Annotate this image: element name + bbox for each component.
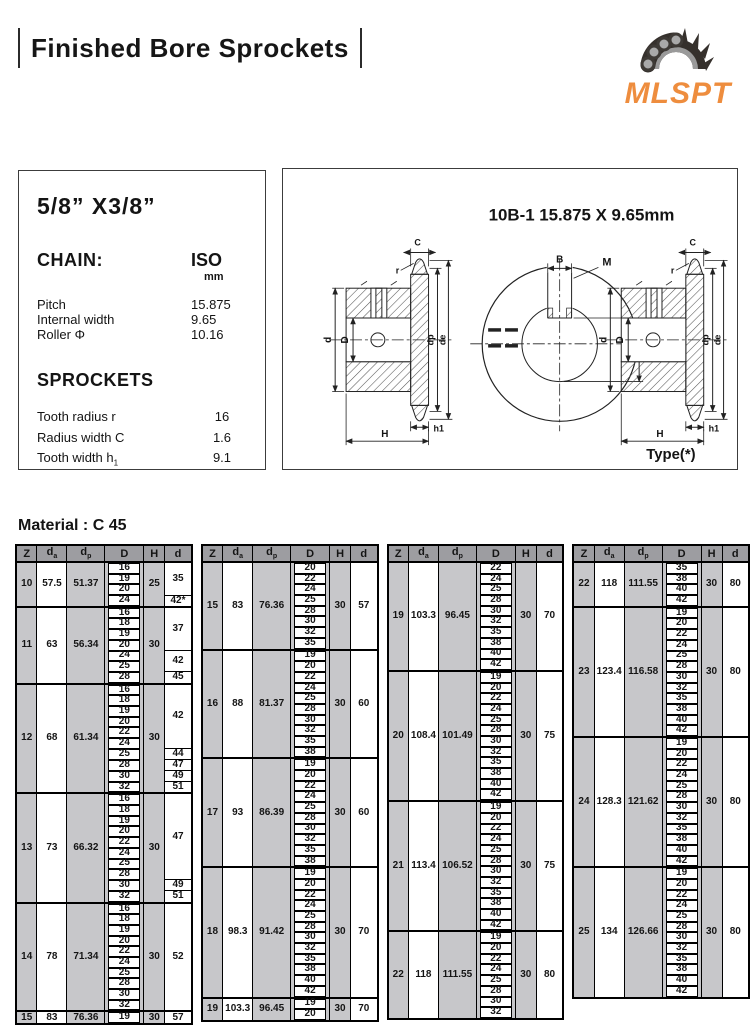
bore-diameter-value: 30 (666, 672, 698, 683)
table-row: 1898.391.42193070 (202, 867, 378, 879)
dim-label-h1: h1 (434, 423, 444, 433)
bore-diameter-value: 42 (666, 986, 698, 997)
spec-row: Radius width C 1.6 (37, 430, 253, 451)
cell-da: 113.4 (408, 801, 438, 931)
cell-da: 57.5 (37, 562, 67, 607)
bore-diameter-value: 19 (108, 1012, 140, 1023)
col-header-z: Z (16, 545, 37, 562)
cell-d: 47 (165, 793, 192, 880)
cell-z: 20 (388, 671, 409, 801)
dim-label-d: d (323, 337, 334, 343)
cell-dp: 101.49 (438, 671, 476, 801)
bore-diameter-value: 28 (108, 760, 140, 771)
cell-D: 42 (662, 725, 701, 737)
bore-diameter-value: 25 (108, 749, 140, 760)
col-header-d: D (476, 545, 515, 562)
cell-h: 30 (144, 607, 165, 684)
spec-row-label: Tooth width h1 (37, 450, 191, 471)
cell-D: 28 (105, 672, 144, 684)
sprocket-section-view-left: C r d D dp de h1 H (323, 237, 454, 445)
spec-row-label: Radius width C (37, 430, 191, 451)
cell-D: 32 (105, 782, 144, 794)
bore-diameter-value: 30 (108, 771, 140, 782)
title-rule-right (360, 28, 362, 68)
cell-da: 83 (37, 1011, 67, 1024)
cell-d: 80 (722, 562, 749, 607)
cell-d: 70 (351, 998, 378, 1021)
col-header-d: d (722, 545, 749, 562)
sprocket-table-1: ZdadpDHd1057.551.3716253519202442*116356… (15, 544, 193, 1025)
spec-row-value: 1.6 (191, 430, 253, 451)
col-header-d: D (105, 545, 144, 562)
cell-z: 25 (573, 867, 594, 997)
col-header-d: D (291, 545, 330, 562)
cell-d: 51 (165, 782, 192, 794)
cell-h: 25 (144, 562, 165, 607)
cell-h: 30 (144, 684, 165, 794)
dim-label-h1: h1 (709, 423, 719, 433)
bore-diameter-value: 40 (666, 845, 698, 856)
col-header-h: H (330, 545, 351, 562)
cell-d: 42* (165, 595, 192, 607)
bore-diameter-value: 42 (666, 856, 698, 867)
dim-label-H: H (656, 429, 663, 440)
table-row: 126861.34163042 (16, 684, 192, 696)
table-row: 158376.36203057 (202, 562, 378, 574)
cell-d: 49 (165, 880, 192, 891)
bore-diameter-value: 38 (294, 747, 326, 758)
bore-diameter-value: 38 (294, 856, 326, 867)
dim-label-d: d (598, 337, 609, 343)
cell-d: 44 (165, 749, 192, 760)
cell-dp: 66.32 (67, 793, 105, 902)
cell-h: 30 (701, 562, 722, 607)
spec-row: Roller Φ 10.16 (37, 327, 253, 342)
col-header-d: d (351, 545, 378, 562)
col-header-d: D (662, 545, 701, 562)
chain-section-label: CHAIN: (37, 250, 191, 271)
table-row: 24128.3121.62193080 (573, 737, 749, 749)
bore-diameter-value: 22 (294, 672, 326, 683)
table-row: 116356.34163037 (16, 607, 192, 619)
cell-dp: 56.34 (67, 607, 105, 684)
material-label: Material : C 45 (18, 517, 126, 535)
spec-panel: 5/8” X3/8” CHAIN: ISO mm Pitch 15.875 In… (18, 170, 266, 470)
cell-D: 42 (476, 789, 515, 801)
cell-D: 42 (476, 920, 515, 932)
col-header-h: H (144, 545, 165, 562)
spec-row-value: 9.65 (191, 312, 253, 327)
bore-diameter-value: 19 (480, 672, 512, 683)
spec-row-value: 10.16 (191, 327, 253, 342)
bore-diameter-value: 32 (108, 1000, 140, 1011)
dim-label-B: B (556, 254, 563, 265)
chain-unit: mm (191, 271, 253, 283)
cell-h: 30 (515, 562, 536, 671)
table-row: 1057.551.37162535 (16, 562, 192, 574)
table-row: 19103.396.45193070 (202, 998, 378, 1010)
logo-gear-icon (642, 28, 714, 71)
cell-D: 42 (662, 595, 701, 607)
col-header-z: Z (202, 545, 223, 562)
cell-z: 19 (388, 562, 409, 671)
cell-h: 30 (701, 737, 722, 867)
bore-diameter-value: 32 (108, 782, 140, 793)
table-row: 19103.396.45223070 (388, 562, 564, 574)
cell-D: 22 (476, 562, 515, 574)
cell-da: 73 (37, 793, 67, 902)
table-row: 22118111.55353080 (573, 562, 749, 574)
cell-dp: 81.37 (253, 650, 291, 759)
header-bar: Finished Bore Sprockets (18, 28, 362, 68)
cell-d: 80 (722, 607, 749, 737)
cell-dp: 111.55 (624, 562, 662, 607)
cell-da: 93 (223, 758, 253, 867)
cell-dp: 61.34 (67, 684, 105, 794)
cell-d: 42 (165, 684, 192, 749)
cell-da: 88 (223, 650, 253, 759)
cell-h: 30 (515, 801, 536, 931)
cell-d: 60 (351, 650, 378, 759)
cell-da: 98.3 (223, 867, 253, 997)
cell-d: 45 (165, 672, 192, 684)
bore-diameter-value: 35 (294, 638, 326, 649)
cell-dp: 111.55 (438, 931, 476, 1019)
page-title: Finished Bore Sprockets (31, 33, 349, 64)
cell-da: 108.4 (408, 671, 438, 801)
spec-row-label: Roller Φ (37, 327, 191, 342)
spec-row: Tooth width h1 9.1 (37, 450, 253, 471)
col-header-d: d (165, 545, 192, 562)
cell-d: 37 (165, 607, 192, 651)
title-rule-left (18, 28, 20, 68)
cell-dp: 96.45 (253, 998, 291, 1021)
cell-d: 47 (165, 760, 192, 771)
cell-D: 20 (291, 562, 330, 574)
cell-D: 32 (476, 1007, 515, 1019)
logo-wordmark: MLSPT (625, 77, 733, 110)
tables-container: ZdadpDHd1057.551.3716253519202442*116356… (15, 544, 750, 1025)
cell-z: 16 (202, 650, 223, 759)
cell-D: 42 (291, 986, 330, 998)
cell-da: 103.3 (408, 562, 438, 671)
bore-diameter-value: 35 (294, 845, 326, 856)
col-header-da: da (37, 545, 67, 562)
col-header-dp: dp (438, 545, 476, 562)
spec-row-value: 9.1 (191, 450, 253, 471)
cell-dp: 91.42 (253, 867, 291, 997)
cell-z: 21 (388, 801, 409, 931)
spec-row: Internal width 9.65 (37, 312, 253, 327)
col-header-h: H (701, 545, 722, 562)
sprocket-table-4: ZdadpDHd22118111.5535308038404223123.411… (572, 544, 750, 999)
col-header-z: Z (388, 545, 409, 562)
table-row: 20108.4101.49193075 (388, 671, 564, 683)
dim-label-dp: dp (701, 334, 711, 345)
dim-label-D: D (615, 336, 626, 343)
cell-dp: 126.66 (624, 867, 662, 997)
cell-z: 19 (202, 998, 223, 1021)
cell-da: 83 (223, 562, 253, 650)
cell-d: 70 (536, 562, 563, 671)
cell-h: 30 (701, 607, 722, 737)
drawing-panel: 10B-1 15.875 X 9.65mm C r d D dp de h1 H (282, 168, 738, 470)
cell-dp: 86.39 (253, 758, 291, 867)
spec-row-value: 15.875 (191, 297, 253, 312)
cell-d: 49 (165, 771, 192, 782)
cell-z: 18 (202, 867, 223, 997)
cell-d: 80 (536, 931, 563, 1019)
cell-z: 24 (573, 737, 594, 867)
bore-diameter-value: 20 (294, 1009, 326, 1020)
cell-da: 128.3 (594, 737, 624, 867)
sprocket-section-view-right: C r d D dp de h1 H (598, 237, 729, 445)
bore-diameter-value: 42 (666, 725, 698, 736)
spec-row-label: Tooth radius r (37, 409, 191, 430)
cell-D: 20 (291, 1009, 330, 1021)
cell-d: 52 (165, 903, 192, 1012)
bore-diameter-value: 42 (666, 595, 698, 606)
cell-d: 60 (351, 758, 378, 867)
dim-label-C: C (690, 237, 697, 247)
cell-h: 30 (144, 903, 165, 1012)
catalog-page: { "header": { "title": "Finished Bore Sp… (0, 0, 750, 1036)
cell-z: 11 (16, 607, 37, 684)
cell-d: 75 (536, 801, 563, 931)
bore-diameter-value: 25 (480, 845, 512, 856)
cell-da: 68 (37, 684, 67, 794)
cell-D: 35 (291, 638, 330, 650)
cell-z: 12 (16, 684, 37, 794)
cell-z: 22 (388, 931, 409, 1019)
spec-row: Tooth radius r 16 (37, 409, 253, 430)
cell-d: 80 (722, 867, 749, 997)
size-title: 5/8” X3/8” (37, 193, 253, 220)
cell-D: 40 (662, 845, 701, 856)
table-row: 22118111.55193080 (388, 931, 564, 943)
dim-label-dp: dp (426, 334, 436, 345)
cell-h: 30 (330, 650, 351, 759)
dim-label-de: de (713, 335, 723, 345)
col-header-da: da (408, 545, 438, 562)
cell-da: 118 (594, 562, 624, 607)
cell-h: 30 (701, 867, 722, 997)
cell-d: 57 (351, 562, 378, 650)
cell-d: 80 (722, 737, 749, 867)
cell-dp: 71.34 (67, 903, 105, 1012)
bore-diameter-value: 42 (480, 789, 512, 800)
dim-label-H: H (381, 429, 388, 440)
cell-D: 42 (476, 659, 515, 671)
cell-dp: 121.62 (624, 737, 662, 867)
col-header-dp: dp (624, 545, 662, 562)
cell-z: 14 (16, 903, 37, 1012)
cell-h: 30 (330, 758, 351, 867)
sprocket-technical-drawing: 10B-1 15.875 X 9.65mm C r d D dp de h1 H (283, 169, 737, 469)
col-header-z: Z (573, 545, 594, 562)
dim-label-D: D (340, 336, 351, 343)
chain-standard: ISO (191, 250, 253, 271)
table-row: 25134126.66193080 (573, 867, 749, 879)
cell-da: 118 (408, 931, 438, 1019)
dim-label-r: r (396, 265, 400, 275)
spec-row-label: Pitch (37, 297, 191, 312)
col-header-dp: dp (253, 545, 291, 562)
cell-d: 70 (351, 867, 378, 997)
table-row: 21113.4106.52193075 (388, 801, 564, 813)
cell-z: 15 (16, 1011, 37, 1024)
cell-D: 42 (662, 986, 701, 998)
bore-diameter-value: 42 (294, 986, 326, 997)
cell-D: 35 (662, 562, 701, 574)
cell-z: 10 (16, 562, 37, 607)
cell-d: 35 (165, 562, 192, 595)
cell-d: 51 (165, 891, 192, 903)
cell-h: 30 (515, 671, 536, 801)
cell-da: 63 (37, 607, 67, 684)
cell-D: 16 (105, 562, 144, 574)
bore-diameter-value: 42 (480, 659, 512, 670)
col-header-da: da (594, 545, 624, 562)
table-row: 137366.32163047 (16, 793, 192, 805)
sprocket-table-2: ZdadpDHd158376.3620305722242528303235168… (201, 544, 379, 1022)
spec-row-value: 16 (191, 409, 253, 430)
bore-diameter-value: 24 (108, 595, 140, 606)
cell-D: 24 (105, 595, 144, 607)
sprocket-table-3: ZdadpDHd19103.396.4522307024252830323538… (387, 544, 565, 1020)
drawing-title: 10B-1 15.875 X 9.65mm (489, 206, 675, 225)
cell-D: 38 (291, 856, 330, 868)
col-header-dp: dp (67, 545, 105, 562)
spec-row-label: Internal width (37, 312, 191, 327)
spec-row: Pitch 15.875 (37, 297, 253, 312)
cell-D: 32 (105, 891, 144, 903)
cell-h: 30 (144, 1011, 165, 1024)
cell-da: 134 (594, 867, 624, 997)
table-row: 23123.4116.58193080 (573, 607, 749, 619)
cell-dp: 76.36 (67, 1011, 105, 1024)
cell-D: 22 (291, 672, 330, 683)
cell-D: 25 (476, 845, 515, 856)
table-row: 158376.36193057 (16, 1011, 192, 1024)
cell-z: 17 (202, 758, 223, 867)
cell-D: 19 (662, 737, 701, 749)
table-row: 147871.34163052 (16, 903, 192, 915)
dim-label-M: M (602, 256, 611, 268)
dim-label-C: C (414, 237, 421, 247)
bore-diameter-value: 32 (480, 1007, 512, 1018)
cell-D: 30 (662, 672, 701, 683)
cell-h: 30 (144, 793, 165, 902)
table-row: 179386.39193060 (202, 758, 378, 770)
bore-diameter-value: 32 (108, 891, 140, 902)
cell-z: 23 (573, 607, 594, 737)
cell-d: 75 (536, 671, 563, 801)
cell-D: 35 (291, 845, 330, 856)
cell-da: 103.3 (223, 998, 253, 1021)
sprockets-section-label: SPROCKETS (37, 370, 253, 391)
dim-label-de: de (437, 335, 447, 345)
type-label: Type(*) (646, 447, 695, 463)
cell-z: 22 (573, 562, 594, 607)
cell-h: 30 (330, 562, 351, 650)
col-header-d: d (536, 545, 563, 562)
cell-D: 32 (105, 1000, 144, 1012)
bore-diameter-value: 42 (480, 920, 512, 931)
cell-h: 30 (330, 998, 351, 1021)
cell-dp: 116.58 (624, 607, 662, 737)
col-header-da: da (223, 545, 253, 562)
cell-z: 13 (16, 793, 37, 902)
brand-logo: MLSPT (606, 16, 744, 112)
cell-h: 30 (515, 931, 536, 1019)
cell-da: 123.4 (594, 607, 624, 737)
cell-dp: 96.45 (438, 562, 476, 671)
cell-d: 57 (165, 1011, 192, 1024)
cell-h: 30 (330, 867, 351, 997)
cell-dp: 51.37 (67, 562, 105, 607)
cell-D: 19 (105, 1011, 144, 1024)
cell-da: 78 (37, 903, 67, 1012)
cell-D: 19 (476, 671, 515, 683)
cell-dp: 76.36 (253, 562, 291, 650)
cell-dp: 106.52 (438, 801, 476, 931)
dim-label-r: r (671, 265, 675, 275)
cell-D: 42 (662, 856, 701, 868)
cell-d: 42 (165, 651, 192, 672)
cell-z: 15 (202, 562, 223, 650)
bore-diameter-value: 28 (108, 672, 140, 683)
table-row: 168881.37193060 (202, 650, 378, 662)
col-header-h: H (515, 545, 536, 562)
cell-D: 38 (291, 747, 330, 759)
